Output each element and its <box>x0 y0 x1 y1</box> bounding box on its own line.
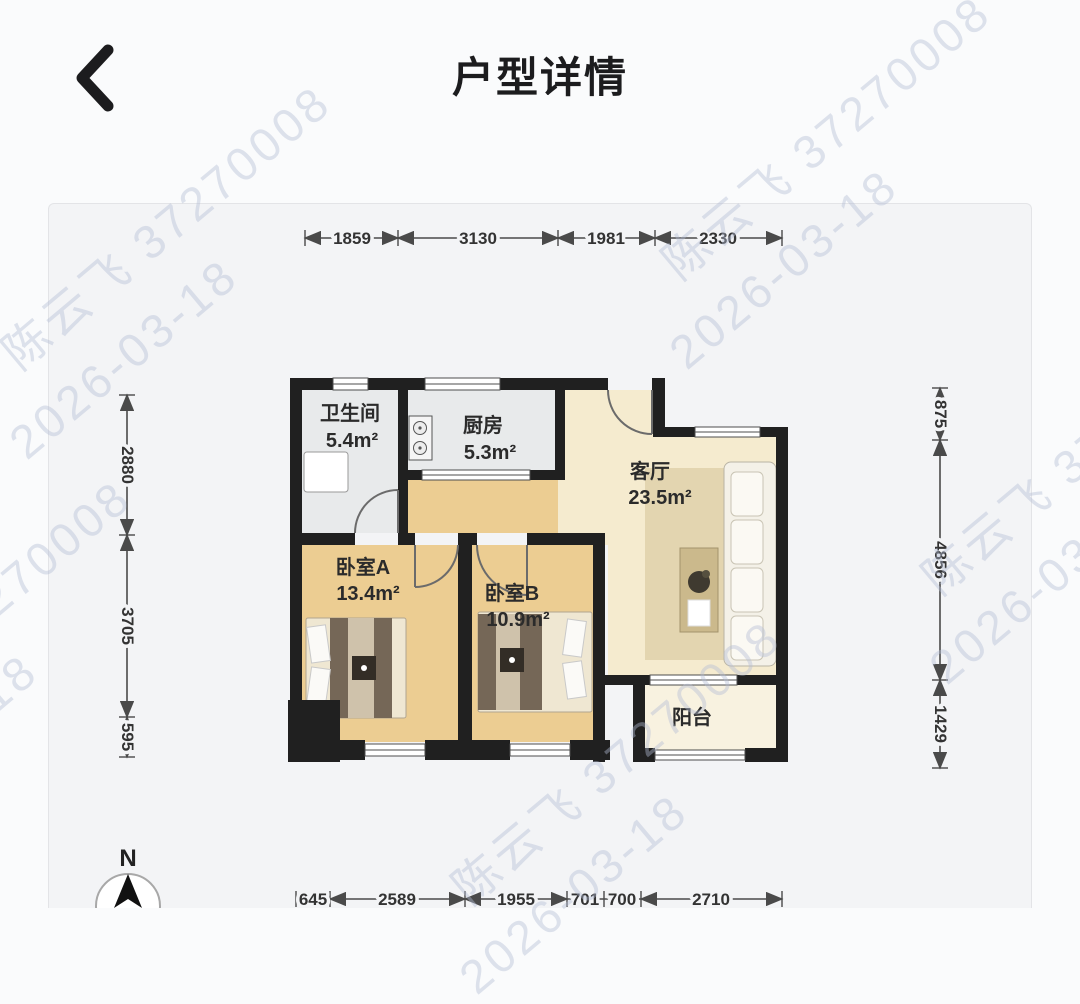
dim-bottom-3: 1955 <box>497 890 535 908</box>
room-label-kitchen: 厨房 <box>463 413 503 437</box>
bedroom-a-window <box>365 744 425 756</box>
bathroom-window <box>333 378 368 390</box>
bathroom-counter <box>304 452 348 492</box>
dim-top-1: 1859 <box>333 229 371 248</box>
room-area-bedroom-a: 13.4m² <box>336 583 400 605</box>
dim-left-2: 3705 <box>118 607 137 645</box>
room-label-bedroom-b: 卧室B <box>485 581 539 605</box>
dim-right-1: 875 <box>931 400 950 428</box>
dim-left-3: 595 <box>118 723 137 751</box>
dim-bottom-2: 2589 <box>378 890 416 908</box>
kitchen-pass-window <box>422 470 530 480</box>
balcony-door-window <box>650 675 737 685</box>
floorplan-image: 卫生间 5.4m² 厨房 5.3m² 客厅 23.5m² 卧室A 13.4m² … <box>0 0 1080 908</box>
dimensions-right: 875 4856 1429 <box>931 388 950 768</box>
sofa <box>724 462 776 666</box>
dimensions-top: 1859 3130 1981 2330 <box>305 229 782 248</box>
dim-bottom-4: 701 <box>571 890 599 908</box>
dim-right-2: 4856 <box>931 541 950 579</box>
compass-label: N <box>119 845 136 872</box>
room-label-living: 客厅 <box>629 459 670 483</box>
coffee-table <box>680 548 718 632</box>
dim-top-2: 3130 <box>459 229 497 248</box>
room-area-bedroom-b: 10.9m² <box>486 609 550 631</box>
dim-top-3: 1981 <box>587 229 625 248</box>
room-area-bathroom: 5.4m² <box>326 430 379 452</box>
stove <box>409 416 432 460</box>
dim-bottom-5: 700 <box>608 890 636 908</box>
room-label-bathroom: 卫生间 <box>320 402 380 425</box>
dim-left-1: 2880 <box>118 446 137 484</box>
room-label-balcony: 阳台 <box>672 705 712 729</box>
balcony-window <box>655 750 745 760</box>
dim-top-4: 2330 <box>699 229 737 248</box>
compass: N <box>96 845 160 908</box>
dimensions-bottom: 645 2589 1955 701 700 2710 <box>296 890 782 908</box>
dim-bottom-6: 2710 <box>692 890 730 908</box>
dimensions-left: 2880 3705 595 <box>118 395 137 757</box>
bedroom-b-window <box>510 744 570 756</box>
livingroom-window <box>695 427 760 437</box>
dim-right-3: 1429 <box>931 705 950 743</box>
kitchen-top-window <box>425 378 500 390</box>
dim-bottom-1: 645 <box>299 890 327 908</box>
room-area-kitchen: 5.3m² <box>464 442 517 464</box>
room-label-bedroom-a: 卧室A <box>336 555 390 579</box>
room-area-living: 23.5m² <box>628 487 692 509</box>
